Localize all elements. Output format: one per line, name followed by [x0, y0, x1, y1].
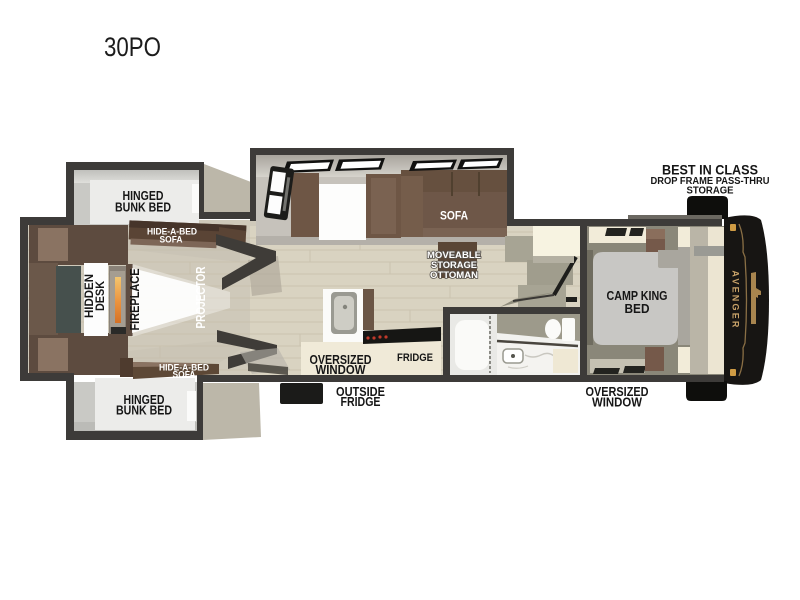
svg-text:OTTOMAN: OTTOMAN	[430, 270, 478, 281]
svg-text:STORAGE: STORAGE	[687, 185, 734, 197]
svg-text:30PO: 30PO	[104, 32, 161, 62]
svg-text:BUNK BED: BUNK BED	[116, 403, 172, 418]
svg-text:BUNK BED: BUNK BED	[115, 200, 171, 215]
svg-text:FIREPLACE: FIREPLACE	[128, 269, 142, 331]
svg-text:SOFA: SOFA	[173, 370, 196, 381]
svg-text:WINDOW: WINDOW	[316, 363, 366, 377]
svg-text:DESK: DESK	[95, 280, 107, 311]
svg-text:FRIDGE: FRIDGE	[341, 395, 381, 409]
svg-text:SOFA: SOFA	[160, 235, 183, 246]
svg-text:WINDOW: WINDOW	[592, 396, 642, 410]
svg-text:SOFA: SOFA	[440, 209, 468, 223]
svg-text:AVENGER: AVENGER	[731, 270, 741, 329]
svg-text:BED: BED	[625, 301, 650, 316]
svg-text:PROJECTOR: PROJECTOR	[194, 267, 208, 329]
svg-text:FRIDGE: FRIDGE	[397, 352, 433, 364]
